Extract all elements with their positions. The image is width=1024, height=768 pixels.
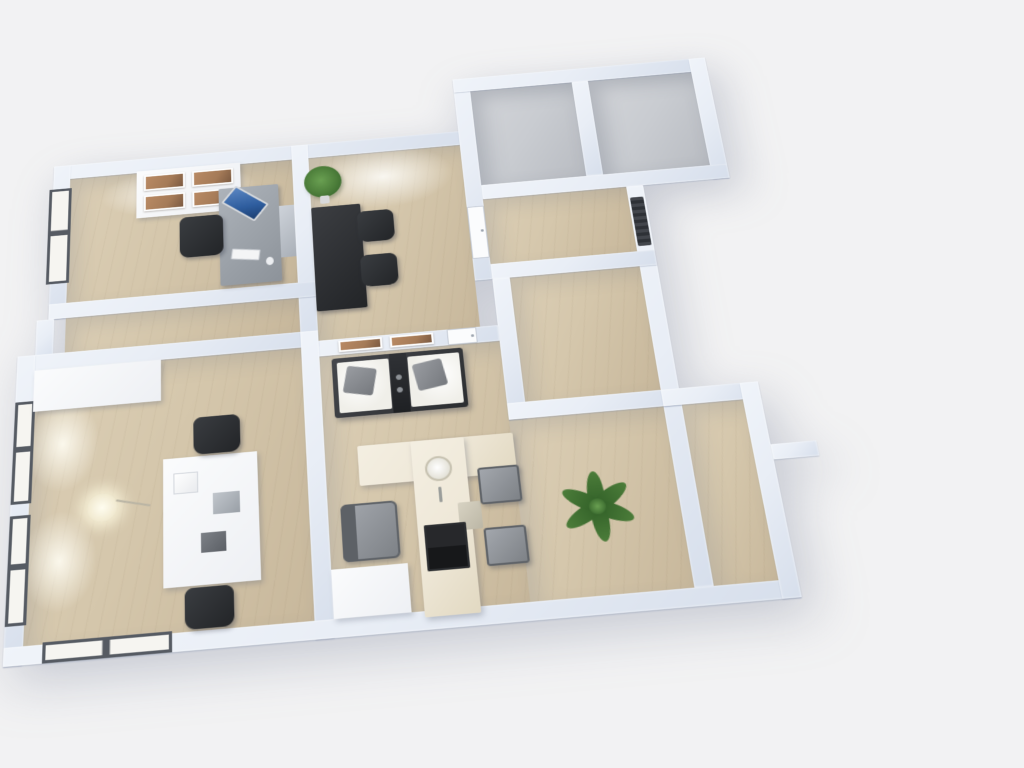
cooktop	[424, 522, 471, 572]
office-side-cabinet	[279, 205, 297, 258]
midright-room-floor	[510, 266, 661, 401]
table-accessory-dark	[201, 531, 227, 553]
floor-plan-render	[0, 0, 1024, 768]
office-window	[46, 188, 72, 285]
sofa-pillow	[343, 366, 377, 396]
apartment-3d-plan	[1, 54, 880, 709]
white-table	[163, 451, 261, 588]
bedroom-window-1	[11, 401, 36, 505]
office-chair	[180, 214, 224, 258]
dining-chair	[483, 525, 530, 567]
wall-exterior-stub	[771, 440, 820, 459]
table-lamp	[173, 471, 198, 494]
dining-chair	[477, 464, 523, 504]
bedroom-chair	[193, 414, 240, 455]
closet-a-floor	[470, 82, 586, 185]
study-chair	[357, 209, 395, 243]
table-accessory	[213, 491, 240, 515]
living-room-door	[447, 327, 478, 345]
closet-b-floor	[588, 72, 710, 175]
large-plant	[548, 462, 648, 552]
plant-pot	[320, 195, 330, 204]
study-chair	[360, 252, 399, 287]
bedroom-chair	[185, 584, 235, 630]
white-cabinet	[331, 563, 411, 619]
keyboard	[231, 249, 261, 261]
